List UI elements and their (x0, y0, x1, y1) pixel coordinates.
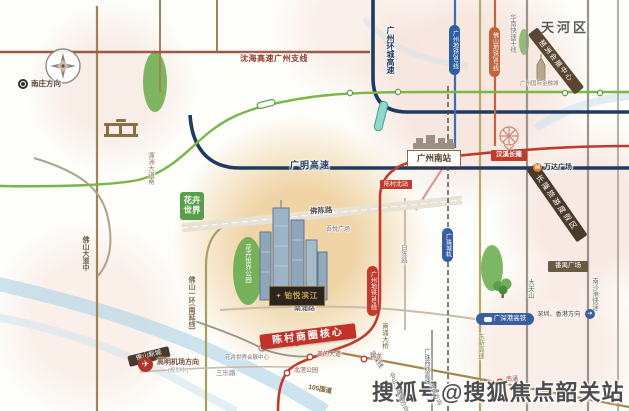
wanda-label: 万达广场 (544, 164, 572, 171)
green-station-dot (562, 90, 567, 95)
project-plaque: ✦ 铂悦滨江 (269, 286, 325, 306)
station-building-icon (413, 135, 455, 149)
highway-huancheng (373, 0, 629, 112)
metro-red-line (278, 146, 629, 411)
huahui-expo-label: 花卉世界会展中心 (225, 356, 269, 362)
green-station-capsule (257, 99, 276, 109)
road-baichen-label: 白陈路 (399, 244, 406, 264)
plane-icon: ✈ (138, 357, 153, 372)
highway-nanshagang-label: 南沙港快速 (590, 278, 597, 311)
station-jinlong-label: 锦龙 (370, 354, 382, 360)
highway-guangzhuxi-label: 广珠西线高速 (423, 348, 429, 384)
green-station-dot (395, 89, 400, 94)
park-shape (143, 52, 167, 112)
metro-fsline2-capsule: 佛山地铁2号线 (489, 27, 500, 77)
train-icon (484, 317, 492, 322)
project-logo-icon: ✦ (276, 293, 282, 300)
metro-line2-capsule: 广州地铁2号线 (449, 25, 460, 75)
road-sanle-label: 三乐路 (216, 371, 236, 378)
road-fochen-label: 佛陈路 (310, 206, 333, 215)
compass-icon (46, 49, 80, 83)
station-meididadao-label: 美的大道 (317, 352, 341, 358)
hsr-capsule: 广深港高铁 (476, 313, 534, 325)
river-band-2 (0, 316, 236, 411)
location-map: 搜狐号@搜狐焦点韶关站 天河区 沈海高速广州支线 广州环城高速 广明高速 华南快… (0, 0, 629, 411)
district-label: 天河区 (541, 21, 589, 34)
to-shenzhen-label: 深圳、香港方向 (537, 312, 580, 318)
highway-huancheng-label: 广州环城高速 (386, 26, 394, 74)
road-tanzhou-label: 潭洲大道南 (146, 152, 153, 185)
teal-station-capsule (373, 100, 388, 131)
road-nanchong-label: 南涌路 (294, 305, 315, 312)
highway-shenhai-label: 沈海高速广州支线 (240, 55, 308, 63)
station-nanchong-label: 南涌 (506, 377, 518, 383)
road-yihuan (206, 224, 228, 411)
highway-dongxin-label: 东新高速 (476, 333, 483, 359)
station-dot-jinlong (361, 356, 367, 362)
nanzhuang-direction: 南庄方向 (18, 79, 61, 89)
dafushan-label: 大夫山 (526, 279, 533, 299)
intercity-capsule: 广珠城轨 (442, 228, 453, 262)
tower-icon (537, 54, 545, 80)
ferris-wheel-icon (500, 127, 518, 150)
wanda-plaza: M 万达广场 (533, 163, 572, 172)
station-beijiaopark-label: 北滘公园 (294, 368, 318, 374)
road-foshan-avenue-label: 佛山大道中 (82, 236, 89, 271)
project-name: 铂悦滨江 (284, 292, 318, 300)
green-station-dot (347, 90, 352, 95)
panyu-square-badge: 番禺广场 (548, 261, 588, 272)
highway-yihuan-label: 佛山一环(南延线) (188, 276, 195, 330)
airport-direction-label: 高明机场方向 (157, 359, 199, 366)
watermark: 搜狐号@搜狐焦点韶关站 (372, 375, 624, 407)
gzsouth-station-label: 广州南站 (407, 150, 461, 167)
wuyue-plaza-label: 吾悦广场 (326, 227, 350, 233)
airport-note-label: (规划中) (168, 369, 188, 375)
hsr-label: 广深港高铁 (494, 316, 527, 323)
direction-dot-icon (18, 79, 28, 89)
green-station-dot (597, 90, 602, 95)
highway-huanan-label: 华南快速干线 (508, 14, 515, 53)
station-badge-hanxichanglong: 汉溪长隆 (491, 150, 527, 161)
highway-guangming-label: 广明高速 (290, 161, 330, 170)
station-dot-meididadao (307, 354, 313, 360)
metro-line7-capsule: 广州地铁7号线 (367, 266, 378, 316)
nanzhuang-label: 南庄方向 (31, 80, 61, 88)
metro-m-icon: M (533, 163, 542, 172)
road-tanzhou (34, 158, 110, 276)
station-badge-chencunbei: 陈村北站 (380, 180, 412, 189)
road-nanchong (220, 307, 475, 319)
road-nanchong-bridge-label: 南涌大桥 (380, 323, 387, 349)
direction-arrow-icon: ➔ (585, 309, 595, 319)
gate-icon (104, 119, 138, 137)
huahui-world-badge: 花卉世界 (180, 192, 204, 220)
financecity-label: 广州国际金融城 (520, 82, 559, 88)
huahui-park-label: 花卉世界公园 (243, 244, 250, 283)
station-dot-beijiaopark (284, 370, 290, 376)
